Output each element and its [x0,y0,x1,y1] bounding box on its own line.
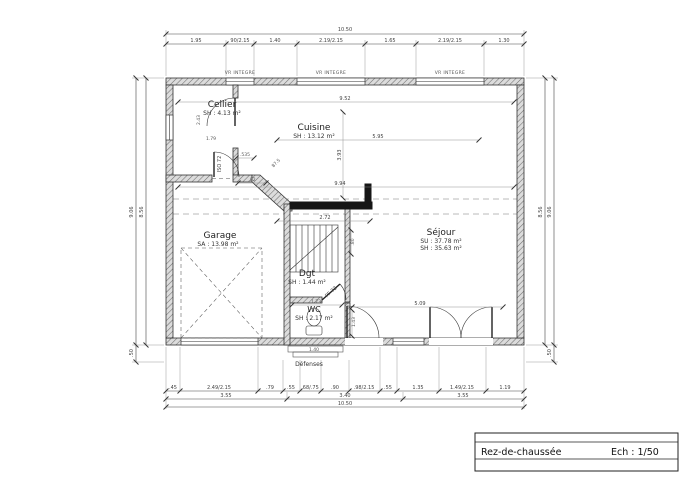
doors: ISO 72 PF 72 [181,98,493,345]
title-block: Rez-de-chaussée Ech : 1/50 [475,433,678,471]
dim-top-seg-2: 1.40 [269,38,280,44]
dim-bot-seg-8: 1.35 [412,385,423,391]
dim-cuisine-width: 5.95 [372,134,383,140]
dim-entry-width: 1.40 [309,347,319,353]
dim-left-inner: 8.56 [139,206,145,217]
kitchen-partition-return [365,184,371,202]
room-area-cellier: SH : 4.13 m² [203,110,241,117]
door-label-iso72: ISO 72 [217,156,223,173]
room-area-wc: SH : 2.17 m² [295,315,333,322]
dim-bot2-0: 3.55 [220,393,231,399]
window-top-1 [226,78,254,85]
dim-right-inner: 8.56 [538,206,544,217]
window-shutter-label-2: VR INTEGRE [316,70,346,76]
window-top-2 [297,78,365,85]
room-area-dgt: SH : 1.44 m² [288,279,326,286]
room-area-su-sejour: SU : 37.78 m² [420,238,462,245]
window-left-cellier [166,115,173,140]
dim-bot-seg-7: .55 [384,385,392,391]
dim-sejour-width: 5.09 [414,301,425,307]
dim-top-seg-0: 1.95 [190,38,201,44]
dim-bot-seg-0: .45 [169,385,177,391]
dim-bottom-total: 10.50 [338,401,352,407]
dim-bot-seg-10: 1.19 [499,385,510,391]
floor-plan-canvas: 10.50 1.95 90/2.15 1.40 2.19/2.15 1.65 2… [0,0,690,488]
dim-cellier-width: 1.79 [206,136,216,142]
door-entry [345,306,383,345]
dim-top-seg-3: 2.19/2.15 [319,38,343,44]
room-label-wc: WC [307,305,321,314]
stairs [290,225,338,272]
door-garage-sectional [181,338,258,345]
room-label-dgt: Dgt [299,269,316,279]
dim-bot2-2: 3.55 [457,393,468,399]
dim-garage-top: .82 [248,177,255,183]
dim-top-seg-6: 1.30 [498,38,509,44]
dim-angle-wall: 87.5 [271,158,282,169]
dim-right-bottom: .50 [547,349,553,357]
dim-cuisine-depth: 3.93 [337,149,343,160]
dim-bot-seg-9: 1.49/2.15 [450,385,474,391]
dim-kitchen-wall: 2.72 [319,215,330,221]
room-label-cellier: Cellier [208,100,237,110]
dim-bot-seg-5: .90 [331,385,339,391]
dim-top-total: 10.50 [338,27,352,33]
annotation-defenses: Défenses [295,361,323,368]
dim-top-seg-5: 2.19/2.15 [438,38,462,44]
dim-cellier-depth: 2.43 [196,115,202,125]
dim-bot-seg-1: 2.49/2.15 [207,385,231,391]
window-top-3 [416,78,484,85]
door-french-double [429,307,493,345]
dim-wc-depth: 1.43 [351,317,357,327]
garage-door-cross [181,248,262,338]
dim-bot2-1: 3.40 [339,393,350,399]
dim-left-outer: 9.06 [129,206,135,217]
dim-hall-depth: .80 [350,238,356,245]
dim-top-seg-1: 90/2.15 [230,38,249,44]
window-bottom-sejour [393,338,424,345]
dim-cellier-door: .535 [240,152,250,158]
dim-left-bottom: .50 [129,349,135,357]
door-wc: PF 72 [322,284,346,300]
window-shutter-label-1: VR INTEGRE [225,70,255,76]
room-area-garage: SA : 13.98 m² [197,241,239,248]
room-area-cuisine: SH : 13.12 m² [293,133,335,140]
room-label-garage: Garage [204,231,237,241]
kitchen-partition-wall [290,202,372,209]
dim-bot-seg-3: .55 [287,385,295,391]
dim-right-outer: 9.06 [547,206,553,217]
room-label-sejour: Séjour [427,227,456,238]
dim-top-seg-4: 1.65 [384,38,395,44]
window-shutter-label-3: VR INTEGRE [435,70,465,76]
dim-width-top: 9.52 [339,96,350,102]
titleblock-plan-name: Rez-de-chaussée [481,447,562,458]
dim-bot-seg-4: .68/.75 [301,385,319,391]
room-area-sh-sejour: SH : 35.63 m² [420,245,462,252]
dim-width-mid: 9.94 [334,181,345,187]
room-label-cuisine: Cuisine [298,123,331,133]
titleblock-scale: Ech : 1/50 [611,447,659,458]
dim-bot-seg-2: .79 [266,385,274,391]
dim-bot-seg-6: .98/2.15 [354,385,375,391]
